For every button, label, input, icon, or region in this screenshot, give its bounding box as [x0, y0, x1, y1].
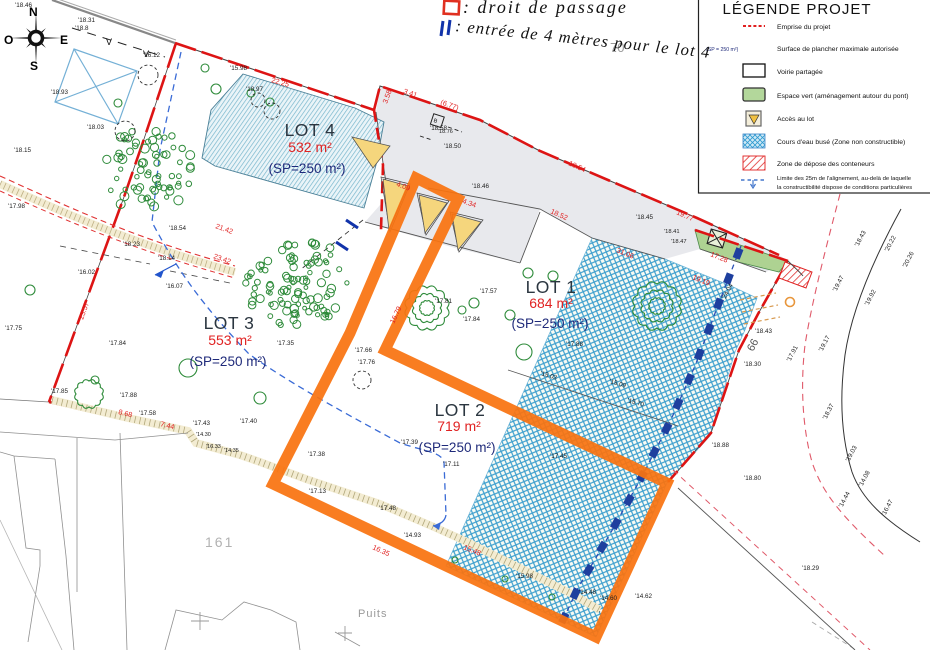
svg-text:LOT 2: LOT 2: [435, 400, 486, 420]
svg-text:'14.48: '14.48: [579, 589, 596, 596]
svg-text:'17.35: '17.35: [277, 340, 294, 347]
svg-text:O: O: [4, 33, 13, 47]
svg-text:'17.88: '17.88: [120, 392, 137, 399]
svg-text:LOT 4: LOT 4: [285, 120, 336, 140]
svg-text:Accès au lot: Accès au lot: [777, 116, 814, 123]
svg-text:'14.60: '14.60: [600, 595, 617, 602]
svg-text:Espace vert (aménagement autou: Espace vert (aménagement autour du pont): [777, 93, 908, 100]
svg-text:'17.11: '17.11: [443, 461, 460, 468]
svg-text:S: S: [30, 59, 38, 73]
svg-text:'18.46: '18.46: [15, 2, 32, 9]
svg-text:Emprise du projet: Emprise du projet: [777, 24, 830, 31]
svg-text:'15.98: '15.98: [230, 65, 247, 72]
svg-text:'18.31: '18.31: [78, 17, 95, 24]
svg-text:'14.30: '14.30: [196, 432, 211, 438]
svg-text:: droit de passage: : droit de passage: [463, 0, 628, 17]
svg-text:'16.07: '16.07: [166, 283, 183, 290]
svg-text:'17.98: '17.98: [8, 203, 25, 210]
svg-text:'18.41: '18.41: [664, 229, 680, 235]
svg-text:(SP=250 m²): (SP=250 m²): [512, 316, 589, 331]
svg-text:'14.62: '14.62: [635, 593, 652, 600]
svg-text:'18.50: '18.50: [444, 143, 461, 150]
svg-text:'18.30: '18.30: [744, 361, 761, 368]
svg-text:'17.84: '17.84: [463, 316, 480, 323]
svg-text:'16.12: '16.12: [143, 52, 160, 59]
svg-text:la constructibilité dispose de: la constructibilité dispose de condition…: [777, 185, 912, 191]
svg-text:'17.48: '17.48: [379, 505, 396, 512]
svg-text:'17.45: '17.45: [550, 453, 567, 460]
svg-text:Limite des 25m de l'alignement: Limite des 25m de l'alignement, au-delà …: [777, 176, 912, 182]
svg-text:'17.13: '17.13: [309, 488, 326, 495]
svg-text:'18.97: '18.97: [246, 86, 263, 93]
svg-text:(SP=250 m²): (SP=250 m²): [269, 161, 346, 176]
svg-text:'14.93: '14.93: [404, 532, 421, 539]
svg-text:'18.8: '18.8: [75, 25, 89, 32]
svg-text:Zone de dépose des conteneurs: Zone de dépose des conteneurs: [777, 161, 875, 168]
svg-text:'18.93: '18.93: [51, 89, 68, 96]
svg-text:'17.88: '17.88: [566, 341, 583, 348]
svg-text:'17.66: '17.66: [355, 347, 372, 354]
svg-text:'18.45: '18.45: [636, 214, 653, 221]
svg-text:LOT 3: LOT 3: [204, 313, 255, 333]
svg-text:'18.76: '18.76: [438, 129, 453, 135]
svg-text:'14.35: '14.35: [224, 448, 239, 454]
svg-text:V: V: [106, 37, 112, 47]
svg-text:553 m²: 553 m²: [208, 332, 252, 348]
svg-text:'18.43: '18.43: [755, 328, 772, 335]
svg-text:'18.46: '18.46: [472, 183, 489, 190]
svg-text:'18.80: '18.80: [744, 475, 761, 482]
svg-text:Voirie partagée: Voirie partagée: [777, 69, 823, 76]
svg-text:532 m²: 532 m²: [288, 139, 332, 155]
svg-text:'15.98: '15.98: [516, 573, 533, 580]
svg-text:719 m²: 719 m²: [437, 418, 481, 434]
svg-text:161: 161: [205, 534, 234, 550]
svg-text:'18.15: '18.15: [14, 147, 31, 154]
svg-text:'17.43: '17.43: [193, 420, 210, 427]
svg-text:LÉGENDE PROJET: LÉGENDE PROJET: [722, 1, 871, 18]
svg-text:'17.81: '17.81: [435, 298, 452, 305]
svg-text:'17.84: '17.84: [109, 340, 126, 347]
svg-text:'17.40: '17.40: [240, 418, 257, 425]
svg-text:'18.29: '18.29: [802, 565, 819, 572]
svg-text:'17.38: '17.38: [308, 451, 325, 458]
svg-text:(SP=250 m²): (SP=250 m²): [190, 354, 267, 369]
svg-text:Surface de plancher maximale a: Surface de plancher maximale autorisée: [777, 46, 899, 53]
svg-text:'18.47: '18.47: [671, 239, 687, 245]
svg-text:'17.58: '17.58: [139, 410, 156, 417]
svg-text:'17.39: '17.39: [401, 439, 418, 446]
svg-text:'16.33: '16.33: [206, 444, 221, 450]
svg-text:E: E: [60, 33, 68, 47]
svg-text:LOT 1: LOT 1: [526, 277, 577, 297]
svg-text:'17.57: '17.57: [480, 288, 497, 295]
svg-text:684 m²: 684 m²: [529, 295, 573, 311]
svg-text:'17.76: '17.76: [358, 359, 375, 366]
svg-text:'17.75: '17.75: [5, 325, 22, 332]
svg-text:'18.03: '18.03: [87, 124, 104, 131]
svg-text:Puits: Puits: [358, 608, 387, 620]
svg-text:'18.23: '18.23: [123, 241, 140, 248]
svg-text:'17.85: '17.85: [51, 388, 68, 395]
svg-text:Cours d'eau busé (Zone non con: Cours d'eau busé (Zone non constructible…: [777, 139, 905, 146]
svg-text:'16.02: '16.02: [78, 269, 95, 276]
svg-text:'18.88: '18.88: [712, 442, 729, 449]
svg-text:'18.54: '18.54: [169, 225, 186, 232]
svg-text:(SP=250 m²): (SP=250 m²): [419, 440, 496, 455]
svg-text:'18.14: '18.14: [158, 255, 175, 262]
